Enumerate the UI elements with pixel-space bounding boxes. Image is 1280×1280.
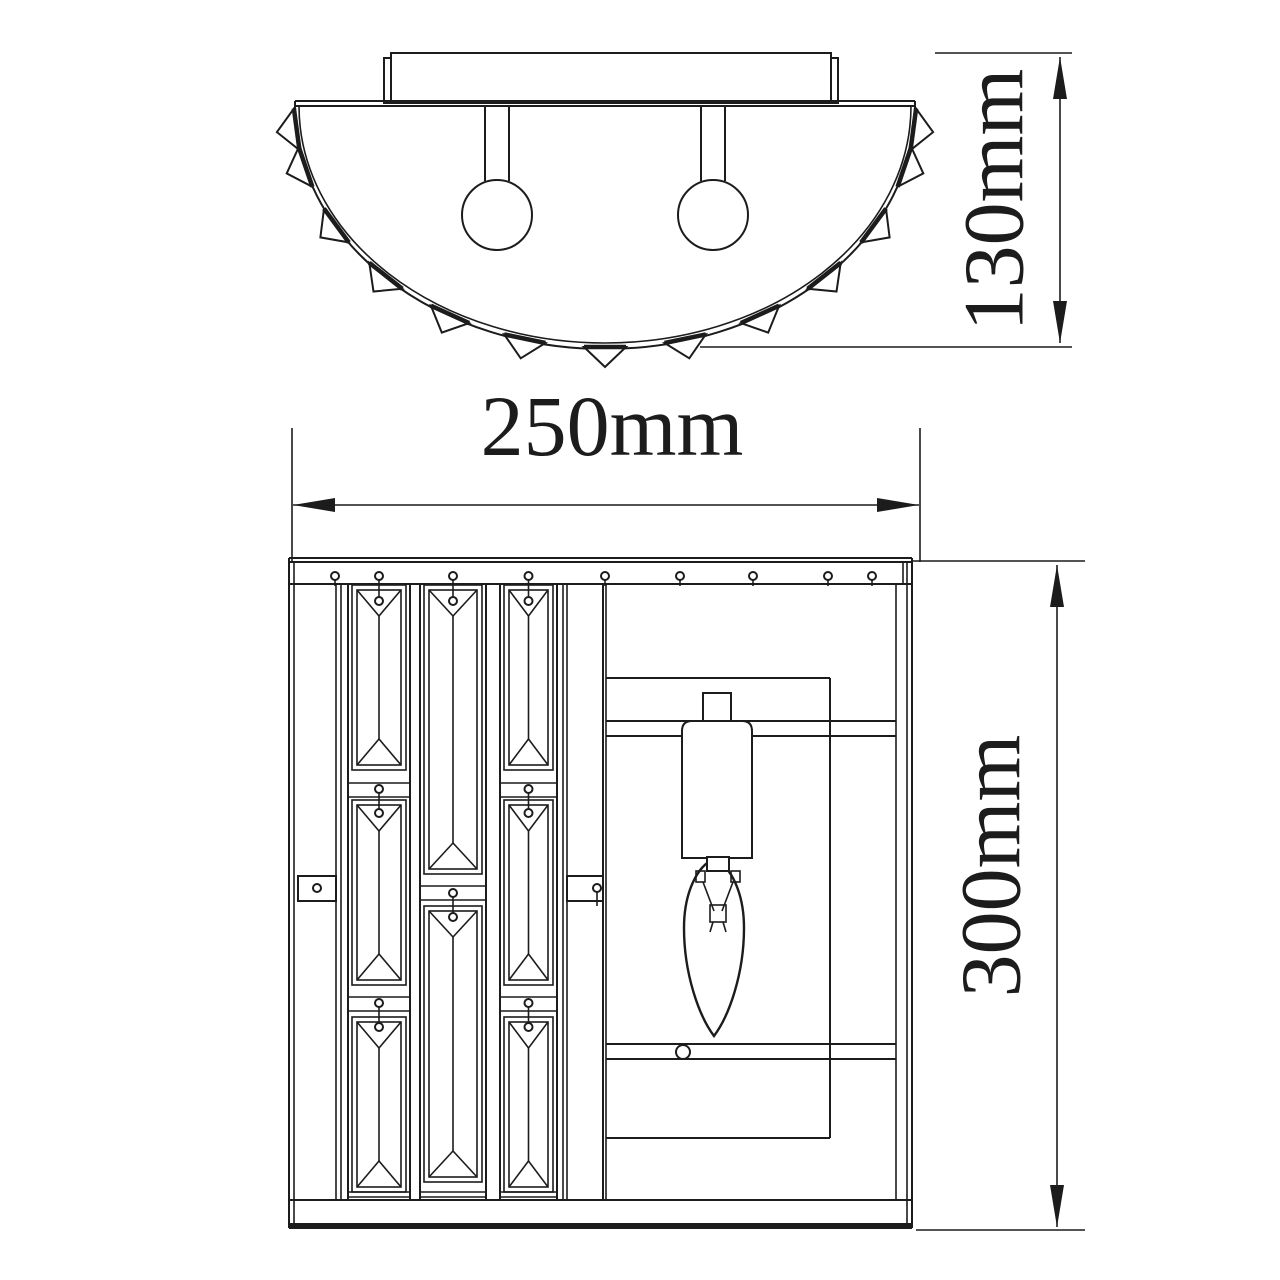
crystal-panel-column-2 [420,572,486,1200]
arrowhead-right-icon [877,498,919,512]
sconce-dimension-drawing: 130mm 250mm [0,0,1280,1280]
crystal-panel-column-3 [500,572,557,1200]
candle-bulb [684,859,744,1036]
lamp-compartment [606,678,896,1138]
arrowhead-up-icon [1053,57,1067,99]
arrowhead-left-icon [293,498,335,512]
technical-drawing-page: 130mm 250mm [0,0,1280,1280]
mounting-plate-left-tab [384,58,391,103]
crystal-trim [277,109,933,367]
mounting-plate-right-tab [831,58,838,103]
lamp-holder-right [678,106,748,250]
lamp-holder-left [462,106,532,250]
arrowhead-down-icon [1050,1185,1064,1227]
dimension-width: 250mm [292,378,920,562]
arrowhead-down-icon [1053,301,1067,343]
arrowhead-up-icon [1050,565,1064,607]
top-view [277,53,933,367]
dimension-label-width: 250mm [481,378,744,474]
side-panel-right [567,876,603,906]
rail-screw [676,1045,690,1059]
diffuser-bowl-arc [295,106,915,349]
front-frame [289,558,912,1228]
mounting-plate [391,53,831,103]
dimension-label-height: 300mm [943,735,1039,998]
dimension-label-depth: 130mm [946,69,1042,332]
side-panel-left [298,876,336,901]
crystal-panel-column-1 [348,572,410,1200]
front-view [289,558,912,1228]
lamp-socket [682,693,752,858]
dimension-height: 300mm [912,561,1085,1230]
